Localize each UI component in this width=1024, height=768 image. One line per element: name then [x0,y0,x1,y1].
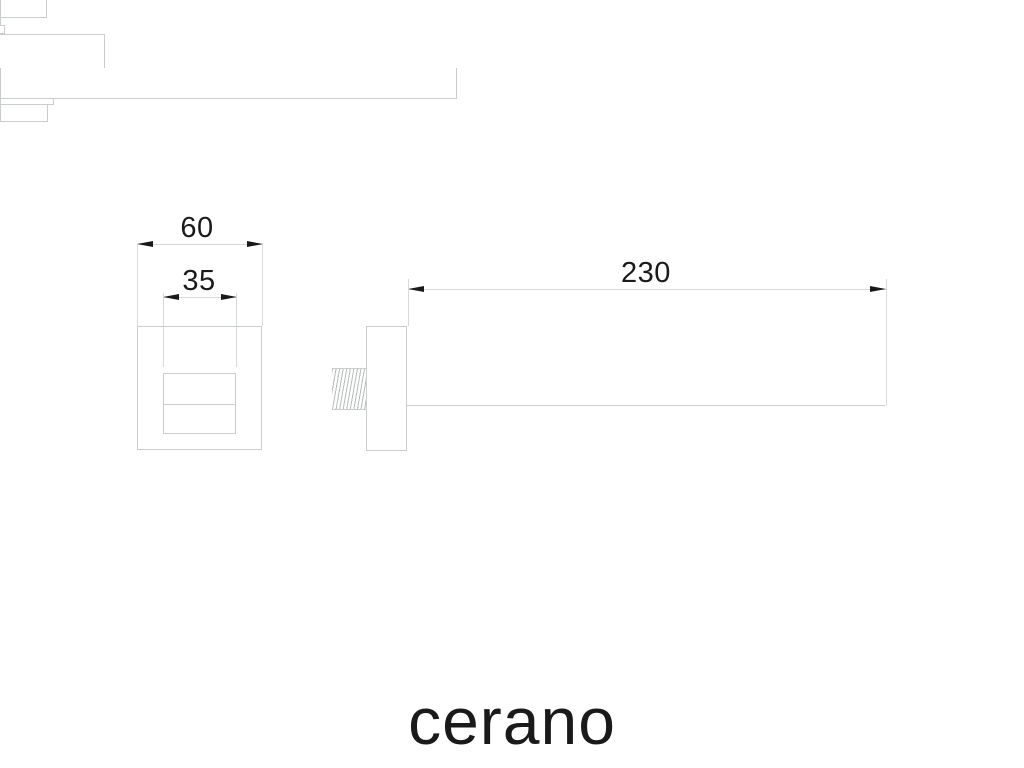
front-aerator-ear-left [0,18,5,26]
arrowhead-left-icon [163,294,179,300]
side-threaded-inlet [332,368,367,410]
side-spout-arm-outline [0,68,457,99]
extension-line [137,244,138,326]
front-aerator-outline [0,0,47,18]
arrowhead-right-icon [870,286,886,292]
side-aerator-outline [0,105,48,122]
dimension-label-flange-width: 60 [147,214,247,243]
front-spout-step-line [164,404,235,405]
front-aerator-ear-right [0,26,5,34]
side-spout-top-line [407,405,885,406]
side-flange-outline [366,326,407,451]
side-spout-step-outline [0,34,105,68]
dimension-label-spout-length: 230 [596,259,696,288]
drawing-canvas: 60 35 230 [0,0,1024,768]
dimension-line-spout-length [408,289,886,290]
arrowhead-left-icon [137,241,153,247]
extension-line [262,244,263,326]
arrowhead-right-icon [221,294,237,300]
dimension-line-flange-width [137,244,263,245]
brand-logo: cerano [0,688,1024,754]
extension-line [886,279,887,406]
dimension-label-spout-width: 35 [149,267,249,296]
front-view: 60 35 [0,0,1024,34]
arrowhead-left-icon [408,286,424,292]
side-view: 230 [0,34,1024,122]
extension-line [408,279,409,326]
arrowhead-right-icon [247,241,263,247]
